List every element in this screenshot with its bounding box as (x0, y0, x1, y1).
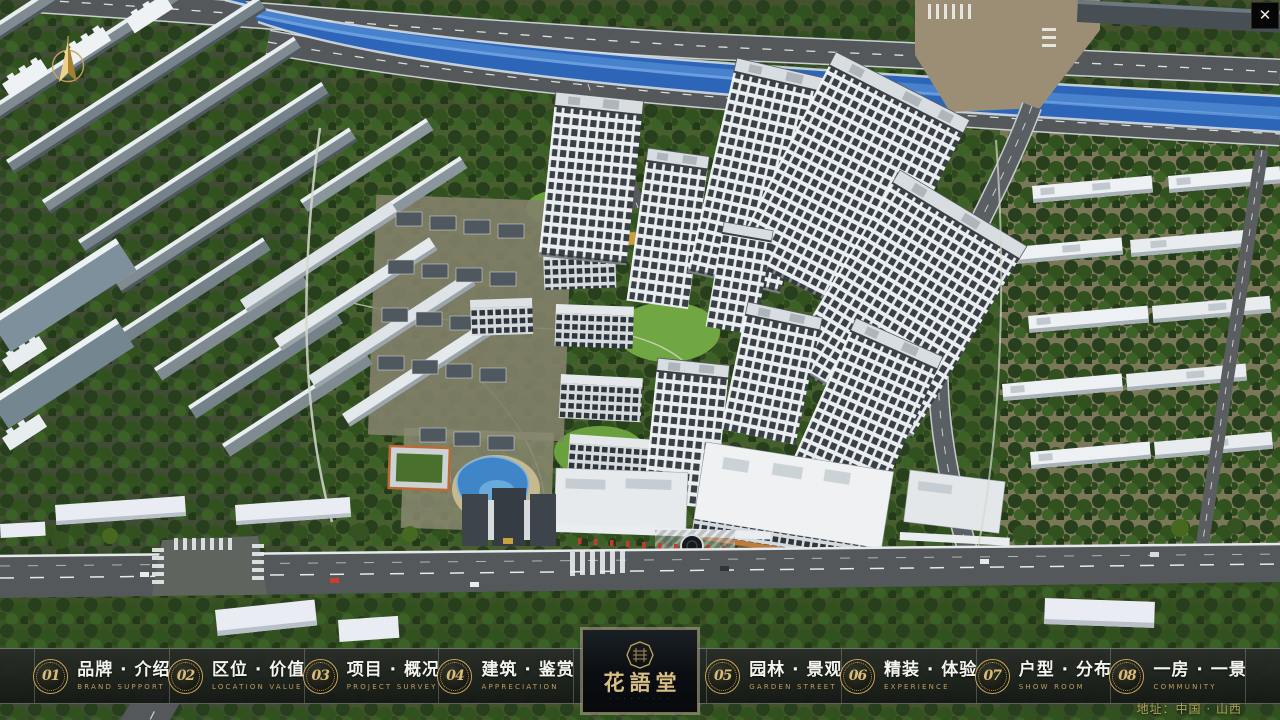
nav-number: 04 (446, 668, 463, 684)
nav-number-badge: 07 (975, 659, 1010, 694)
nav-number-badge: 02 (168, 659, 203, 694)
aerial-render (0, 0, 1280, 720)
nav-number: 01 (42, 668, 59, 684)
nav-item-location[interactable]: 02 区位 · 价值 LOCATION VALUE (169, 649, 304, 703)
nav-label: 园林 · 景观 (749, 661, 842, 680)
nav-number: 02 (177, 668, 194, 684)
nav-number-badge: 06 (840, 659, 875, 694)
nav-number: 07 (983, 668, 1000, 684)
nav-item-brand[interactable]: 01 品牌 · 介绍 BRAND SUPPORT (34, 649, 169, 703)
garden-pavilion (389, 446, 450, 490)
nav-number-badge: 04 (437, 659, 472, 694)
nav-number-badge: 01 (33, 659, 68, 694)
nav-label: 户型 · 分布 (1019, 661, 1112, 680)
nav-number-badge: 08 (1109, 659, 1144, 694)
nav-item-floorplan[interactable]: 07 户型 · 分布 SHOW ROOM (976, 649, 1111, 703)
logo-tagline: · · · · · · · · · (609, 697, 670, 702)
nav-number: 08 (1118, 668, 1135, 684)
nav-sublabel: PROJECT SURVEY (347, 683, 438, 691)
masterplan-3d-map[interactable] (0, 0, 1280, 720)
address-label: 地址：中国 · 山西 (1137, 700, 1242, 717)
nav-number-badge: 05 (705, 659, 740, 694)
nav-label: 建筑 · 鉴赏 (481, 661, 574, 680)
compass-icon (46, 36, 90, 94)
nav-sublabel: BRAND SUPPORT (77, 683, 165, 691)
nav-item-landscape[interactable]: 05 园林 · 景观 GARDEN STREET (706, 649, 841, 703)
nav-label: 精装 · 体验 (884, 661, 977, 680)
nav-sublabel: APPRECIATION (481, 683, 558, 691)
nav-item-project[interactable]: 03 项目 · 概况 PROJECT SURVEY (304, 649, 439, 703)
logo-panel[interactable]: 花語堂 · · · · · · · · · (582, 629, 698, 713)
entrance-gate (462, 488, 556, 546)
nav-sublabel: EXPERIENCE (884, 683, 950, 691)
nav-item-room-view[interactable]: 08 一房 · 一景 COMMUNITY (1110, 649, 1246, 703)
nav-item-interior[interactable]: 06 精装 · 体验 EXPERIENCE (841, 649, 976, 703)
nav-item-architecture[interactable]: 04 建筑 · 鉴赏 APPRECIATION (438, 649, 573, 703)
nav-number: 03 (311, 668, 328, 684)
nav-number: 06 (849, 668, 866, 684)
close-icon: ✕ (1259, 8, 1272, 23)
nav-number: 05 (714, 668, 731, 684)
nav-label: 项目 · 概况 (347, 661, 440, 680)
nav-sublabel: GARDEN STREET (749, 683, 837, 691)
nav-sublabel: COMMUNITY (1153, 683, 1216, 691)
nav-label: 区位 · 价值 (212, 661, 305, 680)
nav-sublabel: SHOW ROOM (1019, 683, 1085, 691)
nav-number-badge: 03 (303, 659, 338, 694)
logo-name: 花語堂 (599, 672, 682, 693)
nav-label: 品牌 · 介绍 (77, 661, 170, 680)
nav-sublabel: LOCATION VALUE (212, 683, 303, 691)
close-button[interactable]: ✕ (1251, 2, 1279, 29)
nav-label: 一房 · 一景 (1153, 661, 1246, 680)
seal-icon (625, 640, 655, 670)
